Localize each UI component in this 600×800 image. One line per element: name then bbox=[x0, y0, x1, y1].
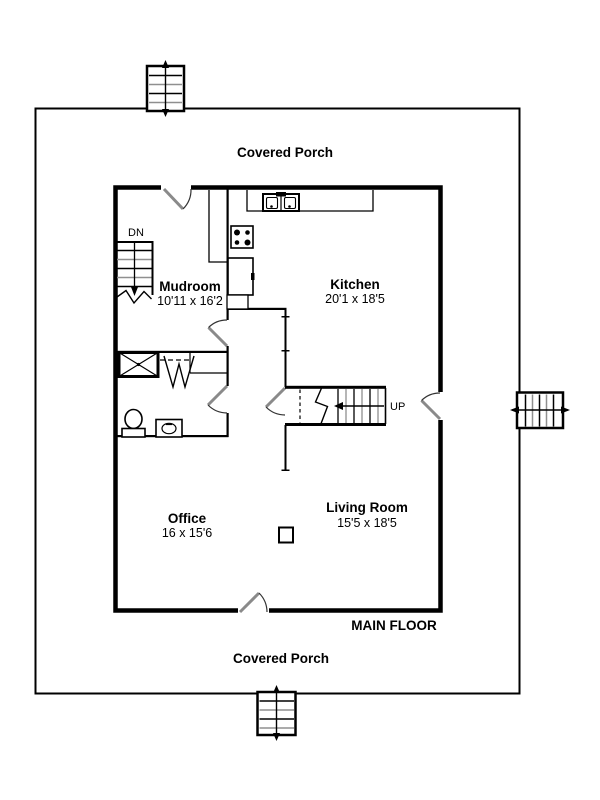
mudroom-dimensions: 10'11 x 16'2 bbox=[157, 294, 223, 308]
arrow-left-icon bbox=[510, 407, 519, 414]
floor-plan-drawing: Covered Porch Covered Porch MAIN FLOOR M… bbox=[0, 0, 600, 800]
kitchen-dimensions: 20'1 x 18'5 bbox=[325, 292, 385, 306]
stairs-down-label: DN bbox=[128, 227, 144, 239]
office-dimensions: 16 x 15'6 bbox=[162, 526, 212, 540]
living-room-name: Living Room bbox=[326, 500, 408, 515]
kitchen-sink-icon bbox=[263, 192, 299, 211]
living-room-dimensions: 15'5 x 18'5 bbox=[337, 516, 397, 530]
stove-icon bbox=[231, 226, 253, 248]
covered-porch-bottom-label: Covered Porch bbox=[233, 651, 329, 666]
column-post bbox=[279, 528, 293, 543]
arrow-right-icon bbox=[561, 407, 570, 414]
arrow-up-icon bbox=[162, 60, 169, 68]
arrow-down-icon bbox=[162, 109, 169, 117]
kitchen-name: Kitchen bbox=[330, 277, 380, 292]
mudroom-name: Mudroom bbox=[159, 279, 221, 294]
main-floor-label: MAIN FLOOR bbox=[351, 618, 437, 633]
porch-stairs-top bbox=[147, 60, 184, 117]
stairs-up-label: UP bbox=[390, 401, 405, 413]
arrow-up-icon bbox=[273, 685, 280, 693]
arrow-down-icon bbox=[273, 733, 280, 741]
porch-stairs-right bbox=[510, 393, 570, 429]
porch-stairs-bottom bbox=[258, 685, 296, 741]
covered-porch-top-label: Covered Porch bbox=[237, 145, 333, 160]
exterior-walls bbox=[116, 183, 446, 615]
bathroom-sink-icon bbox=[156, 420, 182, 438]
floor-plan-page: Covered Porch Covered Porch MAIN FLOOR M… bbox=[0, 0, 600, 800]
office-name: Office bbox=[168, 511, 207, 526]
